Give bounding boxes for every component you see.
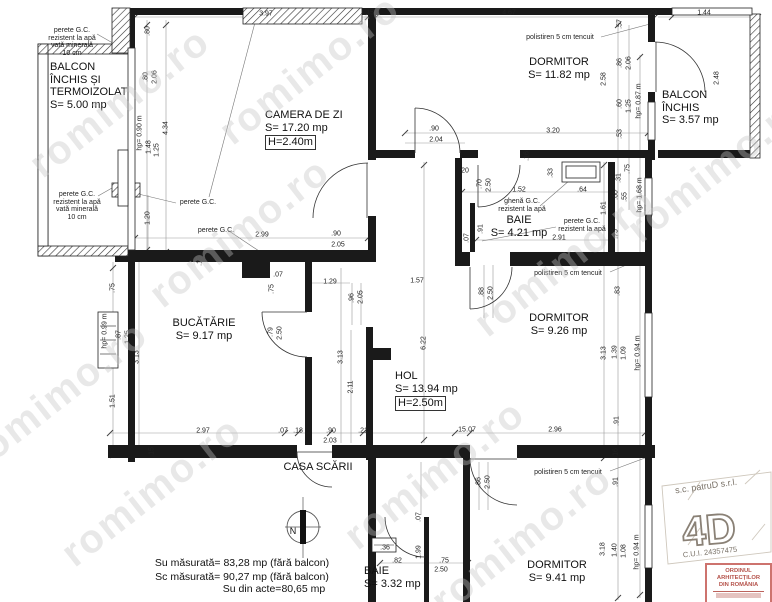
dimension-label: 2.50 — [488, 286, 495, 300]
dimension-label: .86 — [476, 477, 483, 487]
dimension-label: .80 — [143, 72, 150, 82]
dimension-label: 2.50 — [434, 567, 448, 574]
room-label-line: ÎNCHIS ȘI — [50, 74, 127, 87]
dimension-label: 2.97 — [196, 428, 210, 435]
dimension-label: .83 — [615, 286, 622, 296]
dimension-label: .75 — [625, 164, 632, 174]
seal-bottom-row — [716, 593, 761, 598]
room-label-dormitor-3: DORMITORS= 9.41 mp — [527, 559, 587, 584]
note-line: rezistent la apă — [498, 206, 545, 214]
dimension-label: 1.61 — [601, 201, 608, 215]
dimension-label: .16 — [613, 448, 620, 458]
dimension-label: 1.20 — [145, 211, 152, 225]
dimension-label: .75 — [613, 229, 620, 239]
note-line: polistiren 5 cm tencuit — [526, 34, 594, 42]
dimension-label: .21 — [358, 428, 368, 435]
seal-line-1: ORDINUL ARHITECȚILOR — [707, 568, 770, 582]
dimension-label: .91 — [614, 416, 621, 426]
dimension-label: .15 — [149, 447, 156, 457]
dimension-label: .64 — [577, 187, 587, 194]
annotation-note: perete G.C. — [198, 227, 234, 235]
room-label-line: TERMOIZOLAT — [50, 86, 127, 99]
dimension-label: 3.13 — [134, 350, 141, 364]
watermark: romimo.ro — [0, 312, 157, 480]
room-label-line: BUCĂTĂRIE — [173, 317, 236, 330]
dimension-label: .57 — [617, 19, 624, 29]
room-label-dormitor-1: DORMITORS= 11.82 mp — [528, 56, 590, 81]
room-label-line: HOL — [395, 370, 458, 383]
note-line: perete G.C. — [180, 199, 216, 207]
watermark: romimo.ro — [336, 391, 534, 559]
dimension-label: .96 — [349, 293, 356, 303]
room-height-badge: H=2.50m — [395, 396, 446, 411]
dimension-label: .33 — [548, 168, 555, 178]
dimension-label: .60 — [617, 99, 624, 109]
room-label-line: BALCON — [50, 61, 127, 74]
note-line: rezistent la apă — [48, 35, 95, 43]
room-label-line: S= 13.94 mp — [395, 383, 458, 396]
note-line: 10 cm — [48, 50, 95, 58]
dimension-label: .91 — [613, 477, 620, 487]
dimension-label: 1.48 — [146, 140, 153, 154]
dimension-label: 1.08 — [621, 544, 628, 558]
stamp-company: s.c. patruD s.r.l. — [674, 477, 737, 496]
dimension-label: 3.18 — [600, 542, 607, 556]
dimension-label: 1.25 — [125, 330, 132, 344]
room-label-line: BAIE — [364, 565, 421, 578]
dimension-label: 1.51 — [110, 394, 117, 408]
annotation-note: perete G.C. — [180, 199, 216, 207]
dimension-label: 1.29 — [323, 279, 337, 286]
annotation-note: perete G.C.rezistent la apăvată minerală… — [53, 191, 100, 221]
dimension-label: 1.39 — [612, 345, 619, 359]
annotation-note: perete G.C.rezistent la apă — [558, 218, 605, 233]
dimension-label: 2.11 — [348, 380, 355, 393]
dimension-label: .15 — [364, 10, 374, 17]
room-label-line: S= 5.00 mp — [50, 99, 127, 112]
dimension-label: 1.44 — [697, 10, 711, 17]
seal-line-2: DIN ROMÂNIA — [707, 582, 770, 589]
room-label-line: S= 17.20 mp — [265, 122, 343, 135]
dimension-label: .15 — [456, 427, 466, 434]
note-line: vată minerală — [53, 206, 100, 214]
dimension-label: .07 — [278, 428, 288, 435]
note-line: vată minerală — [48, 42, 95, 50]
dimension-label: 3.97 — [259, 11, 273, 18]
note-line: perete G.C. — [48, 27, 95, 35]
seal-divider — [713, 591, 764, 592]
dimension-label: 2.04 — [429, 137, 443, 144]
dimension-label: 4.67 — [502, 10, 516, 17]
dimension-label: 1.25 — [626, 99, 633, 113]
dimension-label: .80 — [145, 26, 152, 36]
dimension-label: .18 — [293, 428, 303, 435]
dimension-label: .88 — [479, 287, 486, 297]
dimension-label: 1.99 — [416, 545, 423, 559]
dimension-label: .07 — [464, 233, 471, 243]
dimension-label: .90 — [331, 231, 341, 238]
annotation-note: polistiren 5 cm tencuit — [534, 469, 602, 477]
dimension-label: .29 — [647, 10, 657, 17]
dimension-label: 2.03 — [323, 438, 337, 445]
room-label-bucatarie: BUCĂTĂRIES= 9.17 mp — [173, 317, 236, 342]
dimension-label: 1.57 — [410, 278, 424, 285]
area-summary-line: Sc măsurată= 90,27 mp (fără balcon) — [155, 571, 329, 583]
dimension-label: hp= 0.87 m — [636, 83, 643, 118]
dimension-label: 2.58 — [601, 72, 608, 86]
dimension-label: 2.50 — [485, 475, 492, 489]
room-label-hol: HOLS= 13.94 mpH=2.50m — [395, 370, 458, 411]
area-summary-line: Su din acte=80,65 mp — [223, 583, 325, 595]
room-label-line: S= 9.41 mp — [527, 572, 587, 585]
area-summary-line: Su măsurată= 83,28 mp (fără balcon) — [155, 557, 329, 569]
room-label-line: BAIE — [491, 214, 548, 227]
room-label-line: S= 9.17 mp — [173, 330, 236, 343]
watermark: romimo.ro — [141, 149, 339, 317]
room-label-baie-1: BAIES= 4.21 mp — [491, 214, 548, 239]
dimension-label: 2.05 — [358, 290, 365, 304]
compass-north-label: N — [290, 526, 297, 536]
floor-plan: romimo.roromimo.roromimo.roromimo.roromi… — [0, 0, 772, 602]
dimension-label: 3.13 — [601, 346, 608, 360]
room-label-line: S= 4.21 mp — [491, 227, 548, 240]
dimension-label: .75 — [269, 284, 276, 294]
room-label-line: DORMITOR — [527, 559, 587, 572]
annotation-note: ghenă G.C.rezistent la apă — [498, 198, 545, 213]
dimension-label: .86 — [617, 58, 624, 68]
architects-order-seal: ORDINUL ARHITECȚILOR DIN ROMÂNIA — [705, 563, 772, 602]
dimension-label: 2.91 — [552, 235, 566, 242]
dimension-label: 2.99 — [255, 232, 269, 239]
room-label-line: S= 9.26 mp — [529, 325, 589, 338]
dimension-label: .87 — [116, 330, 123, 340]
dimension-label: .82 — [392, 558, 402, 565]
dimension-label: .55 — [622, 192, 629, 202]
dimension-label: 1.40 — [612, 543, 619, 557]
note-line: rezistent la apă — [53, 199, 100, 207]
note-line: rezistent la apă — [558, 226, 605, 234]
dimension-label: 2.50 — [486, 178, 493, 192]
room-label-casa-scarii: CASA SCĂRII — [283, 461, 352, 474]
annotation-note: polistiren 5 cm tencuit — [526, 34, 594, 42]
dimension-label: 1.52 — [512, 187, 526, 194]
room-label-line: ÎNCHIS — [662, 102, 719, 115]
dimension-label: .07 — [273, 272, 283, 279]
dimension-label: .53 — [617, 129, 624, 139]
room-label-line: DORMITOR — [528, 56, 590, 69]
room-label-dormitor-2: DORMITORS= 9.26 mp — [529, 312, 589, 337]
dimension-label: .70 — [477, 179, 484, 189]
dimension-label: .31 — [616, 173, 623, 183]
room-label-balcon-stanga: BALCONÎNCHIS ȘITERMOIZOLATS= 5.00 mp — [50, 61, 127, 111]
dimension-label: hp= 0.94 m — [635, 335, 642, 370]
room-label-balcon-dreapta: BALCONÎNCHISS= 3.57 mp — [662, 89, 719, 127]
room-label-line: CASA SCĂRII — [283, 461, 352, 474]
dimension-label: hp= 1.68 m — [637, 177, 644, 212]
annotation-note: perete G.C.rezistent la apăvată minerală… — [48, 27, 95, 57]
dimension-label: hp= 0.90 m — [137, 115, 144, 150]
dimension-label: 1.09 — [621, 346, 628, 360]
dimension-label: 6.22 — [421, 336, 428, 350]
watermark: romimo.ro — [53, 408, 251, 576]
dimension-label: .20 — [459, 168, 469, 175]
dimension-label: 4.34 — [163, 121, 170, 135]
annotation-note: polistiren 5 cm tencuit — [534, 270, 602, 278]
note-line: polistiren 5 cm tencuit — [534, 270, 602, 278]
dimension-label: hp= 0.94 m — [634, 534, 641, 569]
dimension-label: .36 — [380, 545, 390, 552]
room-label-line: S= 3.32 mp — [364, 578, 421, 591]
room-label-line: BALCON — [662, 89, 719, 102]
room-label-line: S= 3.57 mp — [662, 114, 719, 127]
dimension-label: .75 — [439, 558, 449, 565]
dimension-label: .90 — [326, 428, 336, 435]
room-label-line: DORMITOR — [529, 312, 589, 325]
dimension-label: .90 — [429, 126, 439, 133]
dimension-label: 3.20 — [546, 128, 560, 135]
dimension-label: 2.96 — [548, 427, 562, 434]
dimension-label: .07 — [466, 427, 476, 434]
note-line: polistiren 5 cm tencuit — [534, 469, 602, 477]
dimension-label: .15 — [197, 256, 204, 266]
note-line: perete G.C. — [53, 191, 100, 199]
dimension-label: 2.05 — [331, 242, 345, 249]
dimension-label: .75 — [110, 283, 117, 293]
dimension-label: hp= 0.99 m — [102, 313, 109, 348]
room-label-camera-de-zi: CAMERA DE ZIS= 17.20 mpH=2.40m — [265, 109, 343, 150]
dimension-label: .91 — [478, 224, 485, 234]
note-line: perete G.C. — [198, 227, 234, 235]
dimension-label: 3.13 — [338, 350, 345, 364]
dimension-label: 1.25 — [154, 143, 161, 157]
note-line: perete G.C. — [558, 218, 605, 226]
dimension-label: 2.06 — [152, 70, 159, 84]
room-label-line: CAMERA DE ZI — [265, 109, 343, 122]
room-label-baie-2: BAIES= 3.32 mp — [364, 565, 421, 590]
room-height-badge: H=2.40m — [265, 135, 316, 150]
note-line: ghenă G.C. — [498, 198, 545, 206]
dimension-label: .16 — [524, 151, 531, 161]
dimension-label: 2.06 — [626, 56, 633, 70]
room-label-line: S= 11.82 mp — [528, 69, 590, 82]
dimension-label: .60 — [613, 190, 620, 200]
dimension-label: 2.48 — [714, 71, 721, 85]
dimension-label: .79 — [268, 327, 275, 337]
watermark: romimo.ro — [423, 456, 621, 602]
note-line: 10 cm — [53, 214, 100, 222]
dimension-label: .07 — [416, 512, 423, 522]
dimension-label: 2.50 — [277, 326, 284, 340]
